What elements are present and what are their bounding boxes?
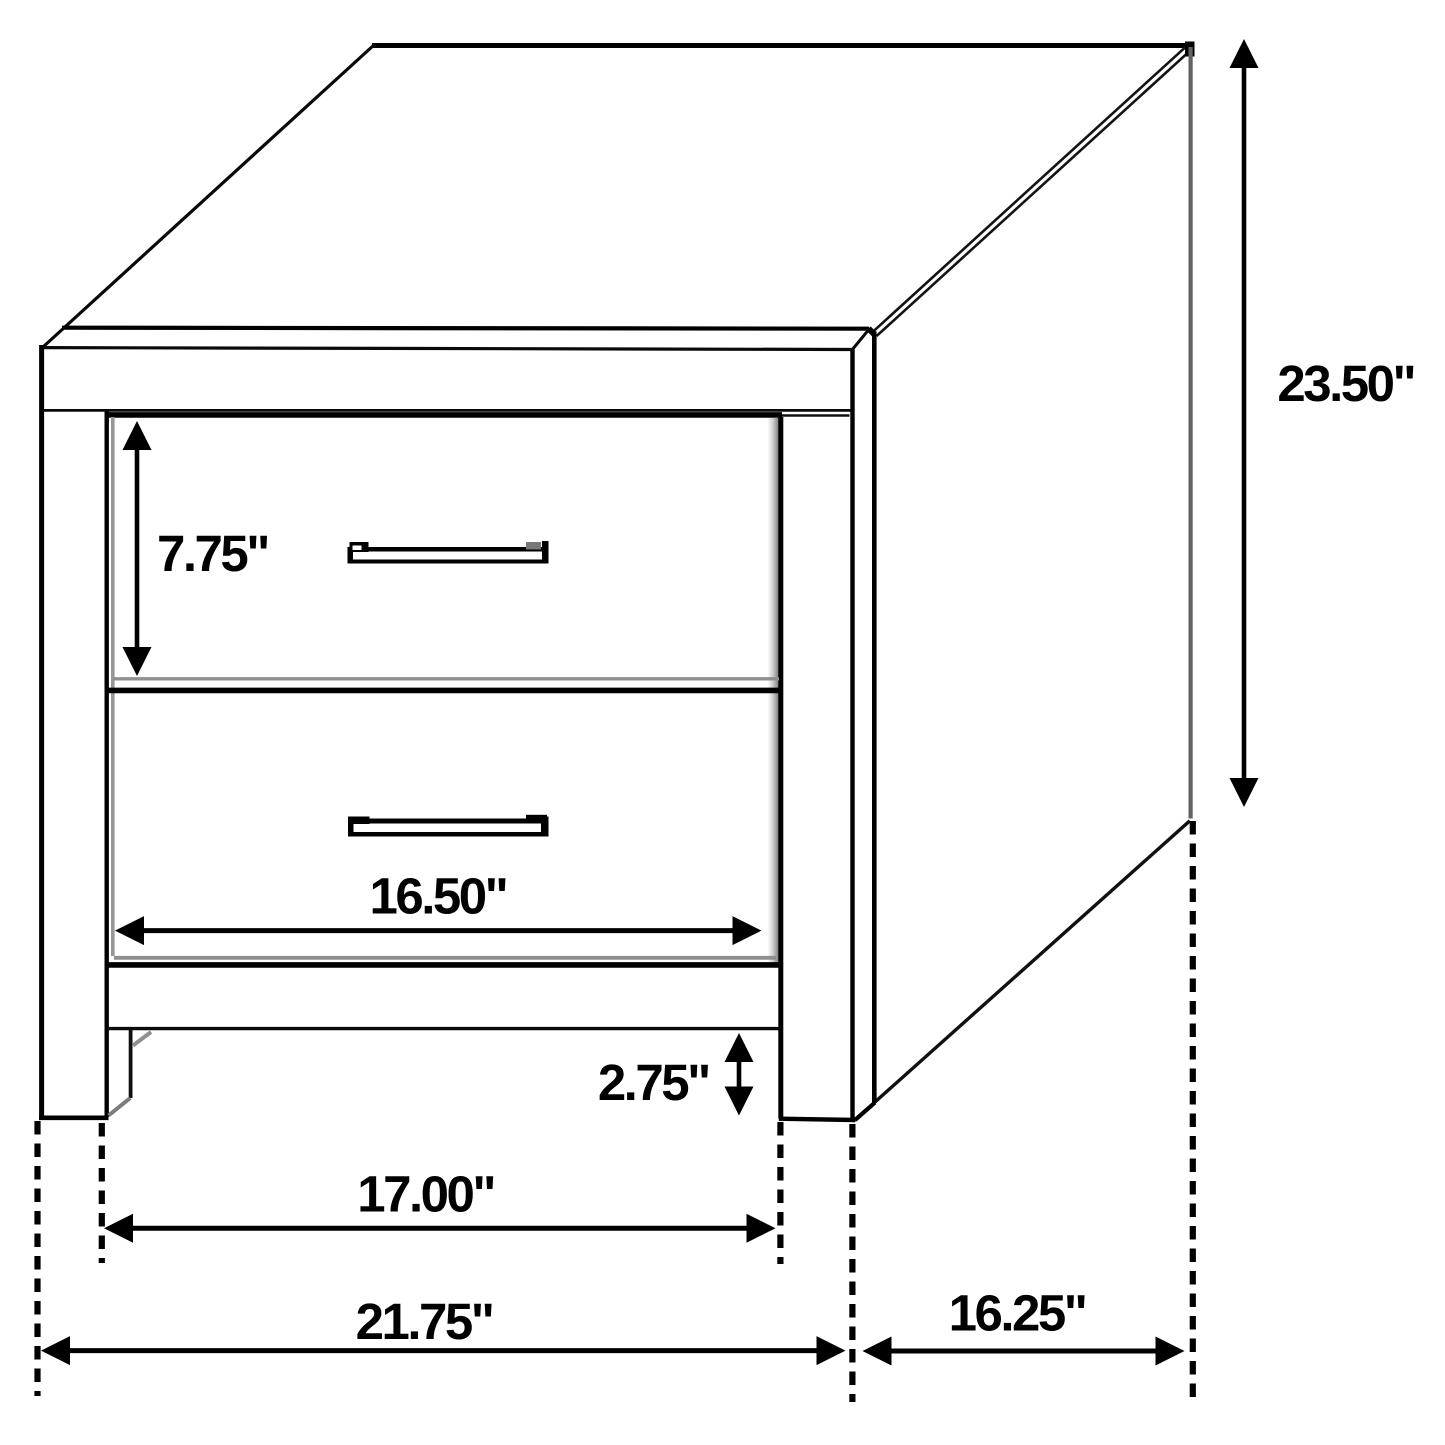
svg-text:16.25": 16.25"	[949, 1285, 1086, 1342]
svg-text:23.50": 23.50"	[1277, 355, 1414, 412]
svg-text:16.50": 16.50"	[369, 868, 506, 925]
svg-text:2.75": 2.75"	[598, 1054, 709, 1111]
svg-text:21.75": 21.75"	[356, 1293, 493, 1350]
svg-text:17.00": 17.00"	[357, 1165, 494, 1222]
svg-text:7.75": 7.75"	[157, 525, 268, 582]
